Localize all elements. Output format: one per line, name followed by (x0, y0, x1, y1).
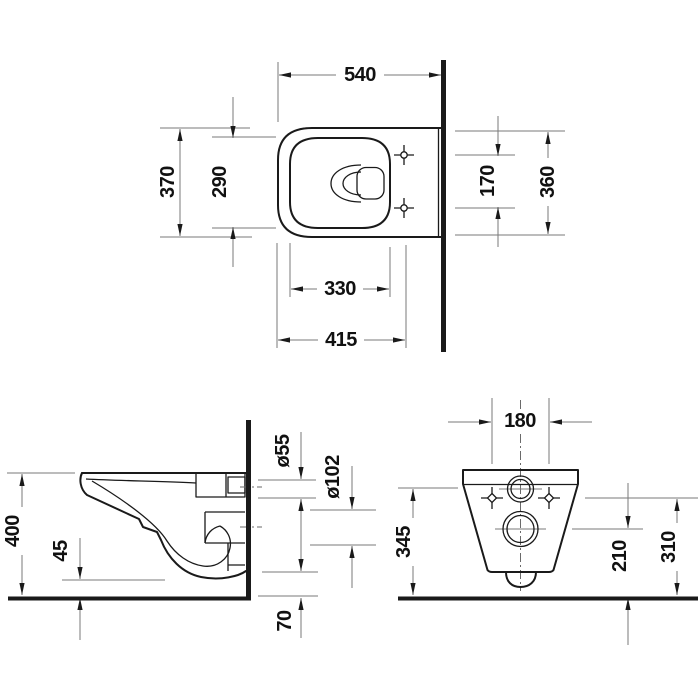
floor-line (398, 597, 698, 601)
svg-text:360: 360 (537, 166, 559, 198)
front-arrowheads (410, 419, 679, 610)
svg-text:45: 45 (50, 540, 72, 562)
dim-label-290: 290 (209, 158, 231, 206)
front-dimension-lines (398, 398, 698, 645)
svg-text:370: 370 (157, 166, 179, 198)
svg-text:ø55: ø55 (272, 434, 294, 467)
svg-text:540: 540 (344, 64, 376, 86)
drain-outline (357, 168, 384, 200)
svg-text:345: 345 (393, 526, 415, 558)
svg-text:210: 210 (609, 540, 631, 572)
trap-curve (205, 526, 220, 543)
svg-text:400: 400 (2, 515, 24, 547)
svg-text:170: 170 (477, 165, 499, 197)
dim-label-370: 370 (157, 158, 179, 206)
dim-label-180: 180 (497, 410, 543, 432)
outlet-pipe-lines (205, 512, 245, 543)
svg-text:290: 290 (209, 166, 231, 198)
flush-spreader (228, 477, 245, 493)
dim-label-70: 70 (274, 604, 296, 638)
fixing-hole-marker (394, 198, 414, 218)
dim-label-400: 400 (2, 507, 24, 555)
bowl-rim-outline (290, 138, 390, 228)
dim-label-330: 330 (317, 278, 363, 300)
fixing-hole-marker (394, 145, 414, 165)
water-inner-arc (343, 172, 361, 195)
svg-text:70: 70 (274, 610, 296, 632)
front-view: 180 345 210 310 (393, 398, 698, 645)
svg-text:330: 330 (324, 278, 356, 300)
dim-label-45: 45 (50, 534, 72, 568)
svg-text:415: 415 (325, 329, 357, 351)
bowl-interior (92, 481, 230, 566)
dim-label-540: 540 (336, 64, 384, 86)
dim-label-360: 360 (537, 158, 559, 206)
wall-line (441, 60, 446, 352)
dim-label-415: 415 (318, 329, 364, 351)
technical-drawing: 540 370 290 170 360 330 415 (0, 0, 700, 700)
dim-label-dia55: ø55 (272, 425, 294, 477)
fixing-hole-marker (538, 487, 560, 509)
dim-label-210: 210 (609, 532, 631, 580)
rim-inner-line (86, 479, 196, 483)
floor-line (8, 597, 251, 601)
dim-label-dia102: ø102 (322, 447, 344, 507)
dim-label-170: 170 (477, 157, 499, 205)
svg-text:ø102: ø102 (322, 455, 344, 499)
drawing-svg: 540 370 290 170 360 330 415 (0, 0, 700, 700)
plan-view: 540 370 290 170 360 330 415 (157, 60, 565, 352)
fixing-hole-marker (481, 487, 503, 509)
svg-text:180: 180 (504, 410, 536, 432)
pan-outline (278, 128, 441, 237)
side-view: 400 45 ø55 ø102 70 (2, 420, 376, 640)
dim-label-345: 345 (393, 518, 415, 566)
dim-label-310: 310 (658, 523, 680, 571)
side-pan-object (80, 473, 262, 578)
plan-pan-object (278, 128, 441, 237)
svg-text:310: 310 (658, 531, 680, 563)
wall-line (246, 420, 251, 598)
